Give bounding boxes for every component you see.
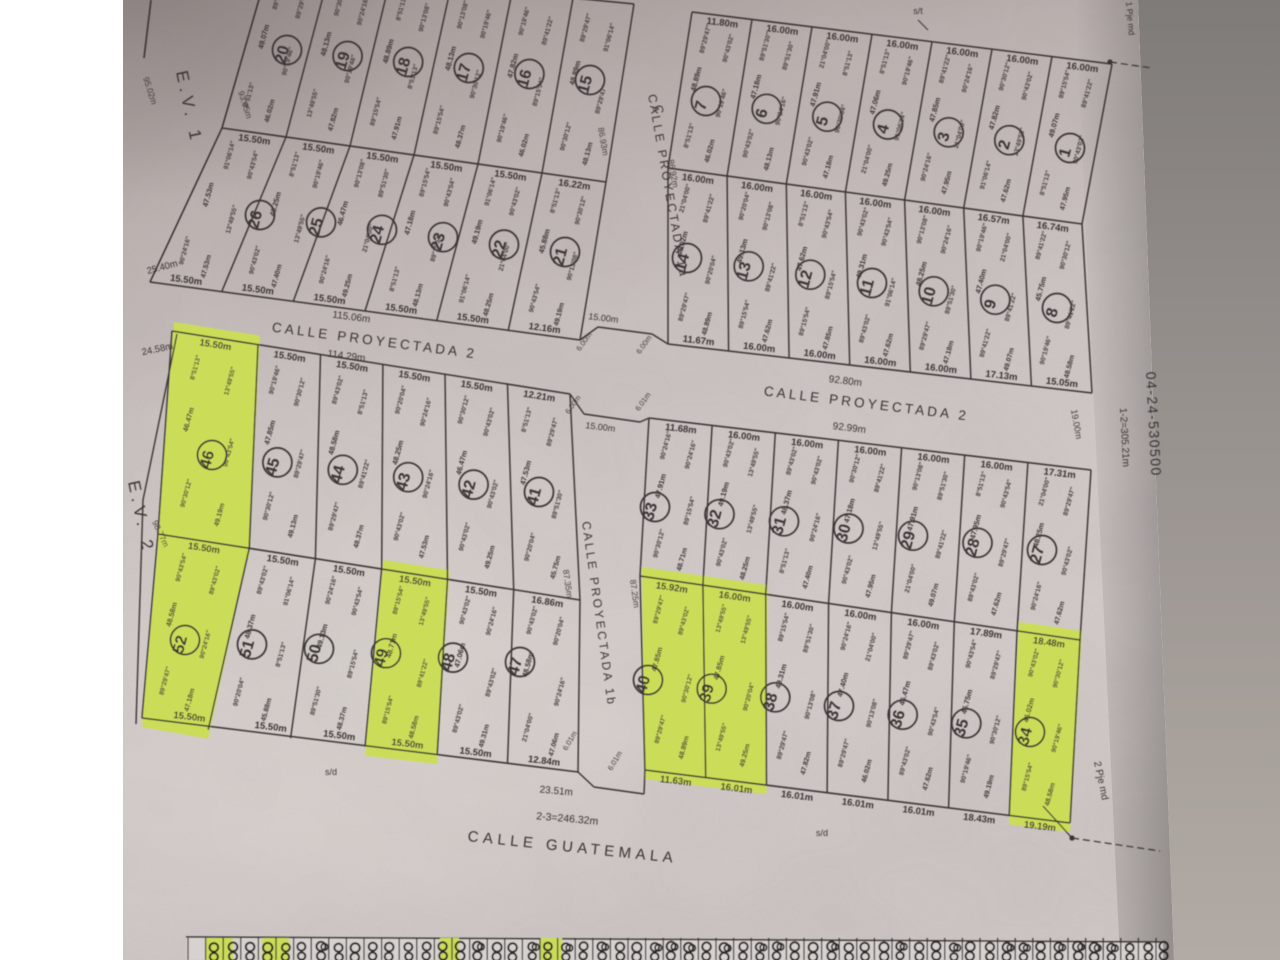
svg-text:s/d: s/d: [816, 828, 828, 838]
svg-text:s/d: s/d: [325, 767, 337, 777]
svg-text:s/t: s/t: [913, 6, 923, 16]
